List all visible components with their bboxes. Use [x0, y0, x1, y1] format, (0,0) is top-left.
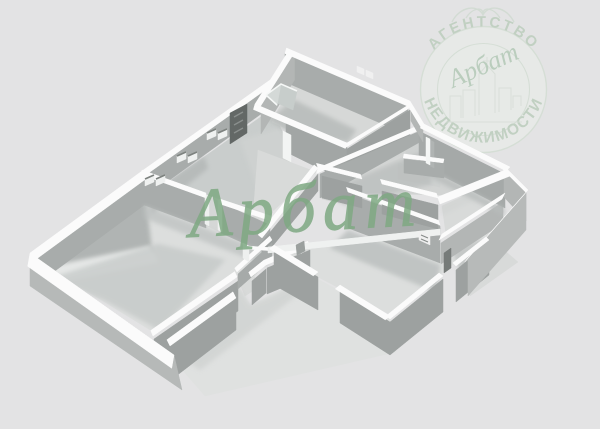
svg-text:Арбат: Арбат [183, 164, 424, 253]
